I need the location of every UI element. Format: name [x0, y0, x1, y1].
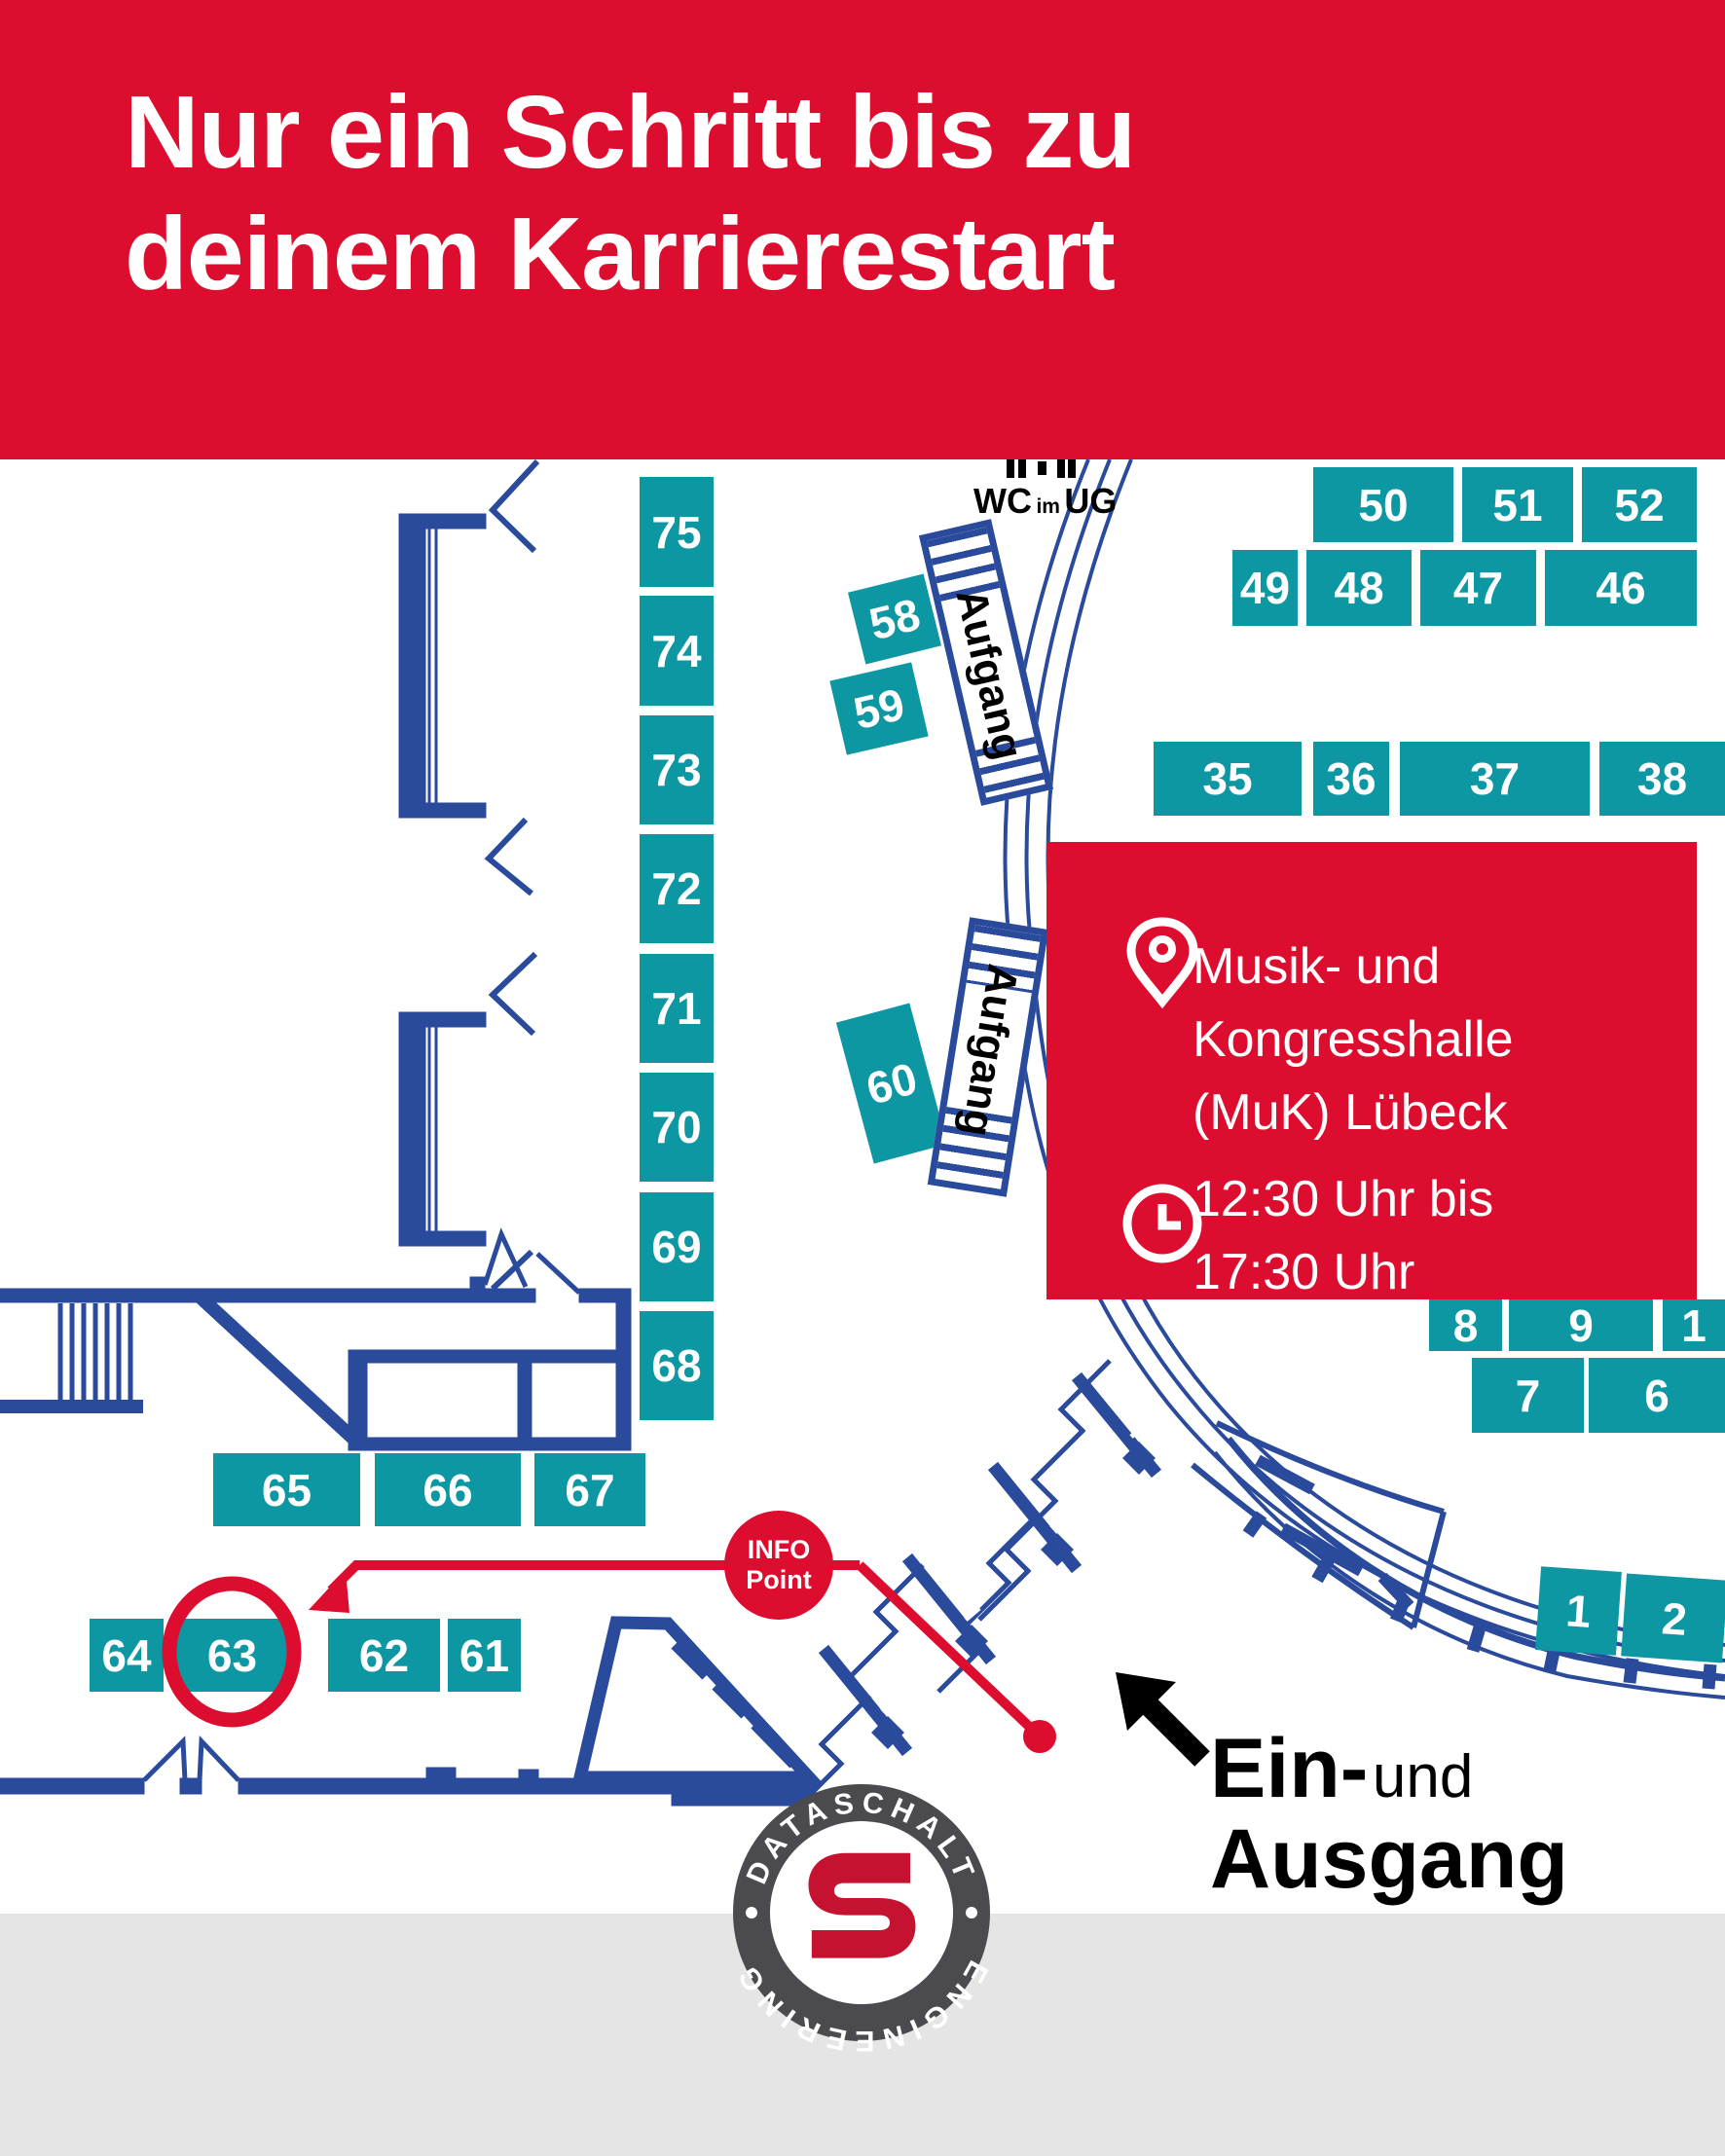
location-text: Musik- und Kongresshalle (MuK) Lübeck — [1193, 931, 1514, 1150]
corridor-walls — [0, 1234, 631, 1450]
booth-63: 63 — [175, 1619, 289, 1692]
booth-67: 67 — [534, 1453, 645, 1526]
fan-wedge — [1193, 1423, 1444, 1627]
booth-7: 7 — [1472, 1358, 1584, 1433]
booth-52: 52 — [1582, 467, 1697, 542]
booth-62: 62 — [328, 1619, 440, 1692]
booth-58: 58 — [848, 573, 941, 664]
booth-2: 2 — [1621, 1573, 1725, 1663]
booth-1: 1 — [1535, 1566, 1622, 1656]
location-line: Musik- und — [1193, 931, 1514, 1004]
aufgang-ramp-lower: Aufgang — [928, 917, 1048, 1196]
title-line-2: deinem Karrierestart — [125, 194, 1135, 315]
booth-73: 73 — [640, 715, 714, 824]
entrance-stairs — [580, 1361, 1156, 1809]
time-line: 12:30 Uhr bis — [1193, 1163, 1493, 1236]
booth-75: 75 — [640, 477, 714, 587]
event-info-box: Musik- und Kongresshalle (MuK) Lübeck 12… — [1046, 842, 1697, 1299]
booth-50: 50 — [1313, 467, 1453, 542]
booth-59: 59 — [829, 662, 928, 754]
booth-49: 49 — [1232, 550, 1298, 626]
location-line: Kongresshalle — [1193, 1004, 1514, 1077]
booth-46: 46 — [1545, 550, 1697, 626]
booth-6: 6 — [1589, 1358, 1725, 1433]
svg-text:DATASCHALT: DATASCHALT — [741, 1786, 982, 1888]
info-point-line: Point — [746, 1565, 812, 1595]
booth-71: 71 — [640, 954, 714, 1063]
header-banner: Nur ein Schritt bis zu deinem Karrierest… — [0, 0, 1725, 459]
info-point-line: INFO — [748, 1535, 811, 1565]
entrance-arrow-icon — [1116, 1672, 1202, 1759]
booth-51: 51 — [1462, 467, 1573, 542]
bottom-wall — [0, 1741, 813, 1806]
logo-arc-top-text: DATASCHALT — [741, 1786, 982, 1888]
route-start-dot — [1023, 1720, 1056, 1753]
booth-65: 65 — [213, 1453, 360, 1526]
route-arrowhead-icon — [309, 1570, 349, 1613]
location-line: (MuK) Lübeck — [1193, 1077, 1514, 1150]
booth-38: 38 — [1599, 742, 1725, 816]
booth-60: 60 — [836, 1003, 947, 1163]
wc-label-ug: UG — [1064, 481, 1117, 521]
booth-74: 74 — [640, 596, 714, 706]
wc-label: WC im UG — [973, 481, 1117, 522]
booth-61: 61 — [448, 1619, 521, 1692]
left-wall-bay-2 — [399, 954, 535, 1289]
wc-label-wc: WC — [973, 481, 1032, 521]
booth-70: 70 — [640, 1073, 714, 1182]
info-point-badge: INFO Point — [724, 1511, 833, 1620]
left-wall-bay-1 — [399, 461, 537, 894]
booth-37: 37 — [1400, 742, 1590, 816]
promenade-wall — [1215, 1439, 1725, 1698]
booth-66: 66 — [375, 1453, 521, 1526]
aufgang-ramp-upper: Aufgang — [919, 519, 1053, 806]
aufgang-label-upper: Aufgang — [945, 584, 1032, 764]
time-text: 12:30 Uhr bis 17:30 Uhr — [1193, 1163, 1493, 1309]
booth-72: 72 — [640, 834, 714, 943]
booth-47: 47 — [1420, 550, 1536, 626]
wc-label-im: im — [1036, 495, 1060, 518]
booth-35: 35 — [1154, 742, 1302, 816]
title-line-1: Nur ein Schritt bis zu — [125, 72, 1135, 194]
entrance-line2: Ausgang — [1210, 1811, 1568, 1908]
entrance-regular: und — [1373, 1743, 1473, 1810]
footer-strip — [0, 1914, 1725, 2156]
booth-69: 69 — [640, 1192, 714, 1301]
page-title: Nur ein Schritt bis zu deinem Karrierest… — [125, 72, 1135, 315]
booth-36: 36 — [1313, 742, 1389, 816]
entrance-bold: Ein- — [1210, 1722, 1368, 1815]
entrance-label: Ein- und Ausgang — [1210, 1721, 1568, 1908]
booth-48: 48 — [1306, 550, 1412, 626]
booth-9: 9 — [1509, 1299, 1653, 1351]
booth-64: 64 — [90, 1619, 164, 1692]
aufgang-label-lower: Aufgang — [952, 961, 1027, 1140]
time-line: 17:30 Uhr — [1193, 1236, 1493, 1309]
booth-1: 1 — [1663, 1299, 1725, 1351]
booth-68: 68 — [640, 1311, 714, 1420]
left-staircase — [0, 1303, 143, 1413]
